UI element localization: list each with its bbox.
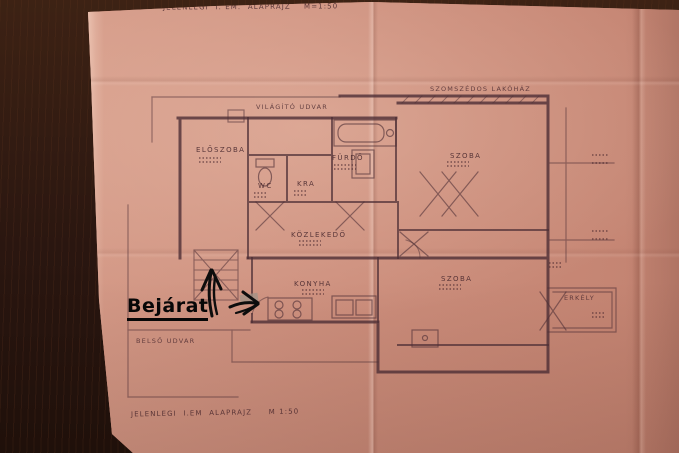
room-label-konyha: KONYHA: [294, 280, 332, 288]
area-label-light-court: VILÁGÍTÓ UDVAR: [256, 103, 328, 111]
dimension-mark: [199, 157, 221, 163]
room-label-eloszoba: ELŐSZOBA: [196, 146, 245, 154]
title-top: JELENLEGI I. EM. ALAPRAJZ M=1:50: [163, 2, 338, 11]
dimension-mark: [447, 161, 469, 167]
room-label-wc: WC: [258, 182, 273, 190]
room-label-szoba-top: SZOBA: [450, 152, 481, 160]
bathtub-icon: [334, 120, 396, 146]
room-label-furdo: FÜRDŐ: [332, 154, 364, 162]
room-label-kamra: KRA: [297, 180, 315, 188]
dimension-mark: [299, 240, 321, 246]
blueprint-paper: JELENLEGI I. EM. ALAPRAJZ M=1:50 JELENLE…: [0, 0, 679, 453]
dimension-mark: [302, 289, 324, 295]
stove-icon: [268, 298, 312, 320]
area-label-neighbor-house: SZOMSZÉDOS LAKÓHÁZ: [430, 85, 531, 93]
dimension-mark: [334, 164, 356, 170]
dimension-mark: [592, 230, 608, 240]
dimension-mark: [254, 192, 267, 198]
dimension-mark: [592, 154, 608, 164]
dimension-mark: [294, 190, 307, 196]
entrance-arrows: [202, 270, 258, 316]
floor-plan-drawing: [0, 0, 679, 453]
chimney-box: [228, 110, 244, 122]
dimension-mark: [439, 284, 461, 290]
kitchen-counter-icon: [332, 296, 376, 318]
room-label-erkely: ERKÉLY: [564, 294, 595, 302]
room-label-kozlekedo: KÖZLEKEDŐ: [291, 231, 346, 239]
room-label-szoba-bottom: SZOBA: [441, 275, 472, 283]
entrance-annotation: Bejárat: [127, 296, 208, 321]
photo-of-floor-plan: JELENLEGI I. EM. ALAPRAJZ M=1:50 JELENLE…: [0, 0, 679, 453]
dimension-mark: [549, 262, 562, 268]
area-label-inner-court: BELSŐ UDVAR: [136, 337, 195, 345]
dimension-mark: [592, 312, 605, 318]
